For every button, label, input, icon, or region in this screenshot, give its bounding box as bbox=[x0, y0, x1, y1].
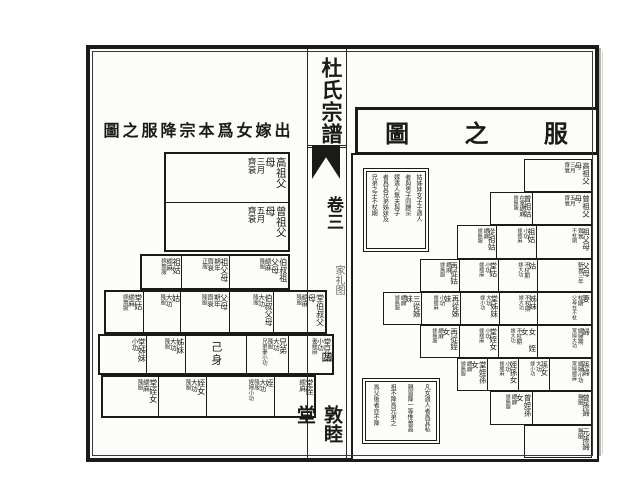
chart-row: 再從姪女緦麻嫁無服堂姪女小功嫁緦麻女 姪女不杖期嫁大功婦嫡婦期眾婦大功 bbox=[420, 325, 592, 358]
cell-name: 祖姑 bbox=[172, 258, 180, 287]
cell-note: 降服 bbox=[295, 294, 301, 330]
cell-name: 曾祖父母 bbox=[264, 206, 286, 248]
cell-note: 降服 bbox=[258, 258, 264, 287]
mourning-cell: 父母期年齊衰降服 bbox=[180, 292, 228, 332]
chart-row: 曾姪孫女緦麻嫁無服曾孫婦無服 bbox=[490, 391, 592, 424]
book-title: 杜氏宗譜 bbox=[308, 57, 346, 148]
mourning-cell: 元孫婦無服 bbox=[525, 426, 591, 457]
spine-column: 杜氏宗譜 卷三 家礼图 四 敦睦堂 bbox=[307, 49, 347, 458]
cell-extra: 兄弟妻小功 bbox=[260, 338, 266, 371]
chart-row: 從祖姑緦麻嫁無服祖姑小功嫁緦麻祖父母齊衰不杖期 bbox=[457, 225, 592, 258]
cell-note: 降服 bbox=[163, 338, 169, 371]
cell-note: 嫁無服 bbox=[460, 361, 465, 388]
cell-note: 嫁無服 bbox=[439, 262, 444, 289]
mourning-cell: 堂姑緦麻嫁無服 bbox=[106, 292, 143, 332]
chart-row: 三從姊妹緦麻嫁無服再從姊妹小功嫁緦麻堂姊妹大功嫁小功姊妹不杖期嫁大功妻杖期父母在… bbox=[383, 292, 592, 325]
cell-name: 堂姊妹 bbox=[490, 295, 498, 322]
cell-grade: 無服 bbox=[576, 394, 582, 421]
right-chart-title-box: 圖 之 服 bbox=[355, 107, 599, 155]
cell-grade: 緦麻 bbox=[436, 328, 442, 355]
cell-name: 高祖父母 bbox=[264, 157, 286, 199]
cell-grade: 齊衰 bbox=[562, 195, 568, 222]
mourning-cell: 婦嫡婦期眾婦大功 bbox=[537, 326, 591, 357]
mourning-cell: 孫婦嫡婦小功眾婦緦麻 bbox=[549, 359, 591, 390]
cell-duration: 三月 bbox=[568, 162, 574, 189]
cell-grade: 齊衰 bbox=[246, 157, 255, 199]
cell-note: 嫁大功 bbox=[517, 262, 522, 289]
chart-row: 堂姪女緦麻降服姪女大功降服姪大功降服姪婦小功堂姪緦麻 bbox=[101, 375, 316, 419]
cell-note: 嫁緦麻 bbox=[478, 262, 483, 289]
note-top: 姑姊妹女子子適人者與男子同歸宗嫁遣人無夫與子者爲其兄弟姊妹及兄弟之子不杖期 bbox=[366, 171, 426, 249]
cell-note: 父母在不杖 bbox=[571, 295, 576, 322]
title-char: 之 bbox=[464, 114, 488, 149]
cell-name: 曾祖姑 bbox=[523, 195, 531, 222]
left-chart-title: 圖之服降宗本爲女嫁出 bbox=[96, 117, 301, 141]
mourning-cell: 曾祖父母五月齊衰 bbox=[532, 193, 590, 224]
chart-row: 元孫婦無服 bbox=[524, 425, 592, 458]
left-chart: 高祖父母三月齊衰曾祖父母五月齊衰祖姑緦麻嫁無服祖父母期年齊衰正服伯叔祖父母緦麻降… bbox=[97, 149, 335, 421]
mourning-cell: 祖姑小功嫁緦麻 bbox=[496, 226, 536, 257]
cell-name: 女 姪女 bbox=[520, 328, 536, 355]
cell-note: 眾婦緦麻 bbox=[571, 361, 576, 388]
cell-note: 眾婦大功 bbox=[571, 328, 576, 355]
cell-name: 祖姑 bbox=[527, 228, 535, 255]
mourning-cell: 堂姪女緦麻降服 bbox=[103, 377, 158, 417]
mourning-cell: 女 姪女不杖期嫁大功 bbox=[498, 326, 537, 357]
mourning-cell: 曾祖父母五月齊衰 bbox=[166, 202, 288, 251]
cell-note: 嫁無服 bbox=[121, 294, 127, 330]
cell-note: 降服 bbox=[252, 379, 258, 415]
mourning-cell: 再從姑緦麻嫁無服 bbox=[421, 260, 459, 291]
cell-name: 姪孫女 bbox=[509, 361, 517, 388]
note-column: 兄弟之子不杖期 bbox=[370, 174, 376, 246]
cell-grade: 小功 bbox=[130, 338, 137, 371]
hall-name: 敦睦堂 bbox=[308, 405, 346, 455]
cell-note: 嫁無服 bbox=[394, 295, 399, 322]
cell-name: 伯叔祖父母 bbox=[270, 258, 287, 287]
mourning-cell: 己身 bbox=[185, 336, 247, 373]
cell-note: 降服 bbox=[184, 379, 190, 415]
cell-note: 嫁大功 bbox=[509, 328, 514, 355]
cell-note: 降服 bbox=[200, 294, 206, 330]
cell-grade: 大功 bbox=[164, 294, 171, 330]
cell-name: 姪 bbox=[265, 379, 273, 415]
cell-grade: 斬衰三年 bbox=[576, 262, 582, 289]
mourning-cell: 堂姊妹小功 bbox=[100, 336, 146, 373]
cell-note: 降服 bbox=[251, 294, 257, 330]
cell-name: 再從姑 bbox=[450, 262, 458, 289]
cell-name: 姑 bbox=[528, 262, 536, 289]
mourning-cell: 曾祖姑在室緦麻嫁無服 bbox=[491, 193, 533, 224]
title-char: 圖 bbox=[385, 114, 409, 149]
cell-name: 三從姊妹 bbox=[405, 295, 421, 322]
mourning-cell: 再從姪女緦麻嫁無服 bbox=[421, 326, 459, 357]
cell-name: 曾祖父母 bbox=[574, 195, 590, 222]
note-column: 者爲其兄弟姊妹及 bbox=[381, 174, 387, 246]
chart-row: 再從姑緦麻嫁無服堂姑小功嫁緦麻姑不杖期嫁大功父母斬衰三年 bbox=[420, 259, 592, 292]
cell-name: 從祖姑 bbox=[487, 228, 495, 255]
cell-note: 降服 bbox=[136, 379, 142, 415]
note-column: 者與男子同歸宗 bbox=[404, 174, 410, 246]
mourning-cell: 堂姑小功嫁緦麻 bbox=[459, 260, 498, 291]
cell-name: 伯叔父母 bbox=[264, 294, 272, 330]
note-column: 親皆降一等惟曾高 bbox=[406, 384, 412, 438]
cell-name: 堂姪女 bbox=[148, 379, 156, 415]
cell-name: 曾姪孫女 bbox=[515, 394, 531, 421]
mourning-cell: 姊妹大功降服 bbox=[146, 336, 184, 373]
cell-note: 不杖期 bbox=[571, 228, 576, 255]
mourning-cell: 高祖父母三月齊衰 bbox=[166, 154, 288, 202]
cell-grade: 大功 bbox=[257, 294, 264, 330]
mourning-cell: 三從姊妹緦麻嫁無服 bbox=[384, 293, 422, 324]
cell-duration: 五月 bbox=[255, 206, 264, 248]
mourning-cell: 祖姑緦麻嫁無服 bbox=[142, 256, 181, 289]
fishtail-mark-icon bbox=[312, 145, 340, 179]
cell-grade: 大功 bbox=[258, 379, 265, 415]
cell-name: 再從姪女 bbox=[442, 328, 458, 355]
cell-name: 姊妹 bbox=[175, 338, 183, 371]
cell-grade: 齊衰 bbox=[246, 206, 255, 248]
cell-name: 高祖父母 bbox=[574, 162, 590, 189]
cell-grade: 齊衰 bbox=[206, 258, 213, 287]
note-column: 姑姊妹女子子適人 bbox=[415, 174, 421, 246]
mourning-cell: 祖父母期年齊衰正服 bbox=[181, 256, 229, 289]
mourning-cell: 堂姪孫女緦麻嫁無服 bbox=[458, 359, 488, 390]
mourning-cell: 父母斬衰三年 bbox=[537, 260, 591, 291]
mourning-cell: 姪女大功降服 bbox=[158, 377, 206, 417]
cell-grade: 緦麻 bbox=[263, 258, 270, 287]
mourning-cell: 堂姪女小功嫁緦麻 bbox=[459, 326, 498, 357]
cell-note: 正服 bbox=[200, 258, 206, 287]
cell-grade: 齊衰 bbox=[562, 162, 568, 189]
cell-name: 己身 bbox=[210, 341, 221, 367]
section-label: 家礼图 bbox=[308, 257, 346, 303]
cell-duration: 期年 bbox=[212, 294, 219, 330]
chart-row: 曾祖姑在室緦麻嫁無服曾祖父母五月齊衰 bbox=[490, 192, 592, 225]
mourning-cell: 孫女大功嫁小功 bbox=[518, 359, 549, 390]
cell-name: 再從姊妹 bbox=[443, 295, 459, 322]
cell-extra: 姪婦小功 bbox=[247, 379, 253, 415]
cell-note: 嫁小功 bbox=[529, 361, 534, 388]
cell-duration: 三月 bbox=[255, 157, 264, 199]
page-edge-shadow-inner bbox=[602, 52, 603, 454]
cell-name: 兄弟 bbox=[278, 338, 286, 371]
right-chart: 姑姊妹女子子適人者與男子同歸宗嫁遣人無夫與子者爲其兄弟姊妹及兄弟之子不杖期 凡女… bbox=[351, 153, 599, 461]
cell-grade: 無服 bbox=[576, 428, 582, 455]
mourning-cell: 祖父母齊衰不杖期 bbox=[536, 226, 590, 257]
cell-name: 堂姑 bbox=[489, 262, 497, 289]
note-column: 爲父後者亦不降 bbox=[372, 384, 378, 438]
cell-note: 嫁無服 bbox=[512, 195, 517, 222]
chart-block-direct-line: 高祖父母三月齊衰曾祖父母五月齊衰 bbox=[164, 152, 290, 253]
mourning-cell: 姪孫女小功嫁緦麻 bbox=[487, 359, 518, 390]
cell-name: 堂姑 bbox=[133, 294, 141, 330]
note-bottom: 凡女適人者爲其私親皆降一等惟曾高祖不降爲兄弟之爲父後者亦不降 bbox=[365, 381, 437, 441]
mourning-cell: 曾姪孫女緦麻嫁無服 bbox=[491, 392, 533, 423]
title-char: 服 bbox=[544, 114, 568, 149]
mourning-cell: 伯叔祖父母緦麻降服 bbox=[229, 256, 288, 289]
cell-name: 姑 bbox=[171, 294, 179, 330]
cell-note: 嫁小功 bbox=[479, 295, 484, 322]
cell-note: 嫁緦麻 bbox=[432, 295, 437, 322]
volume-label: 卷三 bbox=[308, 187, 346, 239]
mourning-cell: 姑不杖期嫁大功 bbox=[498, 260, 537, 291]
note-column: 嫁遣人無夫與子 bbox=[392, 174, 398, 246]
chart-row: 堂姊妹小功姊妹大功降服己身兄弟大功降服兄弟妻小功堂兄弟小功妻緦麻 bbox=[98, 334, 334, 375]
note-column: 祖不降爲兄弟之 bbox=[389, 384, 395, 438]
cell-grade: 緦麻 bbox=[300, 294, 307, 330]
mourning-cell: 曾孫婦無服 bbox=[532, 392, 590, 423]
mourning-cell: 妻杖期父母在不杖 bbox=[537, 293, 590, 324]
cell-note: 嫁緦麻 bbox=[478, 328, 483, 355]
page-frame: 圖之服降宗本爲女嫁出 高祖父母三月齊衰曾祖父母五月齊衰祖姑緦麻嫁無服祖父母期年齊… bbox=[86, 45, 599, 462]
chart-row: 堂姑緦麻嫁無服姑大功降服父母期年齊衰降服伯叔父母大功降服堂伯叔父母緦麻降服 bbox=[104, 290, 327, 334]
cell-name: 堂姪女 bbox=[489, 328, 497, 355]
cell-name: 父母 bbox=[219, 294, 227, 330]
mourning-cell: 姑大功降服 bbox=[143, 292, 181, 332]
cell-note: 嫁無服 bbox=[477, 228, 482, 255]
cell-note: 嫁緦麻 bbox=[516, 228, 521, 255]
note-column: 凡女適人者爲其私 bbox=[423, 384, 429, 438]
cell-grade: 緦麻 bbox=[165, 258, 172, 287]
mourning-cell: 從祖姑緦麻嫁無服 bbox=[458, 226, 497, 257]
cell-note: 降服 bbox=[159, 294, 165, 330]
chart-row: 堂姪孫女緦麻嫁無服姪孫女小功嫁緦麻孫女大功嫁小功孫婦嫡婦小功眾婦緦麻 bbox=[457, 358, 592, 391]
chart-row: 高祖父母三月齊衰 bbox=[524, 159, 592, 192]
cell-note: 嫁無服 bbox=[159, 258, 165, 287]
cell-note: 嫁大功 bbox=[518, 295, 523, 322]
cell-note: 嫁無服 bbox=[505, 394, 510, 421]
mourning-cell: 再從姊妹小功嫁緦麻 bbox=[421, 293, 460, 324]
cell-note: 嫁無服 bbox=[431, 328, 436, 355]
left-page: 圖之服降宗本爲女嫁出 高祖父母三月齊衰曾祖父母五月齊衰祖姑緦麻嫁無服祖父母期年齊… bbox=[90, 49, 307, 458]
mourning-cell: 堂姊妹大功嫁小功 bbox=[460, 293, 499, 324]
mourning-cell: 伯叔父母大功降服 bbox=[229, 292, 274, 332]
cell-name: 孫女 bbox=[540, 361, 548, 388]
mourning-cell: 兄弟大功降服兄弟妻小功 bbox=[246, 336, 287, 373]
cell-name: 堂姪孫女 bbox=[471, 361, 487, 388]
mourning-cell: 高祖父母三月齊衰 bbox=[525, 160, 591, 191]
cell-duration: 五月 bbox=[568, 195, 574, 222]
page-number: 四 bbox=[308, 349, 346, 365]
chart-row: 祖姑緦麻嫁無服祖父母期年齊衰正服伯叔祖父母緦麻降服 bbox=[140, 254, 290, 291]
right-page: 圖 之 服 姑姊妹女子子適人者與男子同歸宗嫁遣人無夫與子者爲其兄弟姊妹及兄弟之子… bbox=[347, 49, 596, 458]
cell-name: 堂姊妹 bbox=[137, 338, 145, 371]
mourning-cell: 姪大功降服姪婦小功 bbox=[206, 377, 274, 417]
cell-grade: 不杖期 bbox=[522, 262, 528, 289]
mourning-cell: 姊妹不杖期嫁大功 bbox=[499, 293, 538, 324]
cell-note: 嫁緦麻 bbox=[498, 361, 503, 388]
scanned-genealogy-page: 圖之服降宗本爲女嫁出 高祖父母三月齊衰曾祖父母五月齊衰祖姑緦麻嫁無服祖父母期年齊… bbox=[0, 0, 640, 501]
cell-name: 姪女 bbox=[196, 379, 204, 415]
